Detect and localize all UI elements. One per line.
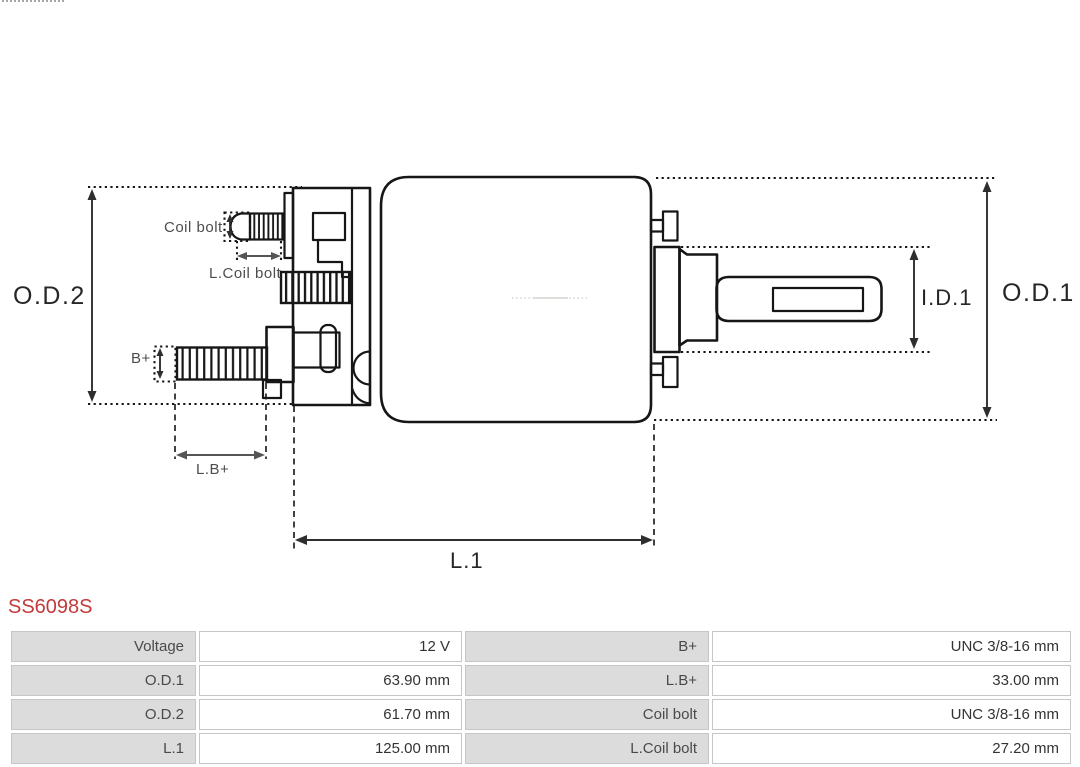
dim-label-lbplus: L.B+ xyxy=(196,462,229,477)
table-row: L.1 125.00 mm L.Coil bolt 27.20 mm xyxy=(11,733,1071,764)
dim-label-lcoil-bolt: L.Coil bolt xyxy=(209,266,281,281)
dim-label-l1: L.1 xyxy=(450,550,484,572)
table-row: O.D.2 61.70 mm Coil bolt UNC 3/8-16 mm xyxy=(11,699,1071,730)
lbplus-drop-lines xyxy=(175,383,266,459)
l1-drop-lines xyxy=(294,406,654,549)
od1-dimension-arrow xyxy=(983,181,992,418)
spec-label: Coil bolt xyxy=(465,699,709,730)
spec-value: 61.70 mm xyxy=(199,699,462,730)
solenoid-diagram: O.D.2 O.D.1 I.D.1 L.1 Coil bolt L.Coil b… xyxy=(0,0,1080,590)
spec-label: B+ xyxy=(465,631,709,662)
l1-dimension-arrow xyxy=(295,535,653,545)
dim-label-coil-bolt: Coil bolt xyxy=(164,220,223,235)
solenoid-drawing xyxy=(0,0,1080,590)
spec-value: 27.20 mm xyxy=(712,733,1071,764)
spec-value: 12 V xyxy=(199,631,462,662)
bplus-dimension-arrow xyxy=(157,348,164,379)
coil-bushing xyxy=(281,272,350,303)
spec-label: L.Coil bolt xyxy=(465,733,709,764)
dim-label-od2: O.D.2 xyxy=(13,284,86,309)
spec-label: Voltage xyxy=(11,631,196,662)
lcoil-extent-lines xyxy=(237,241,281,262)
dim-label-id1: I.D.1 xyxy=(921,287,972,309)
spec-label: O.D.2 xyxy=(11,699,196,730)
spec-value: 33.00 mm xyxy=(712,665,1071,696)
spec-value: UNC 3/8-16 mm xyxy=(712,699,1071,730)
spec-value: UNC 3/8-16 mm xyxy=(712,631,1071,662)
coil-bolt-extent-box xyxy=(225,213,251,242)
dim-label-bplus: B+ xyxy=(131,351,151,366)
spec-label: L.B+ xyxy=(465,665,709,696)
id1-extent-lines xyxy=(681,247,930,352)
lcoil-dimension-arrow xyxy=(237,252,281,260)
product-spec-page: O.D.2 O.D.1 I.D.1 L.1 Coil bolt L.Coil b… xyxy=(0,0,1080,767)
coil-bolt xyxy=(231,214,283,240)
spec-value: 125.00 mm xyxy=(199,733,462,764)
od2-dimension-arrow xyxy=(88,189,97,402)
plunger-shaft xyxy=(655,247,882,352)
table-row: O.D.1 63.90 mm L.B+ 33.00 mm xyxy=(11,665,1071,696)
solenoid-body xyxy=(381,177,651,422)
dim-label-od1: O.D.1 xyxy=(1002,281,1075,306)
spec-table: Voltage 12 V B+ UNC 3/8-16 mm O.D.1 63.9… xyxy=(8,628,1074,767)
spec-label: O.D.1 xyxy=(11,665,196,696)
bplus-bolt xyxy=(177,325,340,398)
lbplus-dimension-arrow xyxy=(176,451,265,460)
spec-value: 63.90 mm xyxy=(199,665,462,696)
table-row: Voltage 12 V B+ UNC 3/8-16 mm xyxy=(11,631,1071,662)
part-number: SS6098S xyxy=(8,596,93,619)
spec-label: L.1 xyxy=(11,733,196,764)
id1-dimension-arrow xyxy=(910,249,919,349)
bplus-extent-box xyxy=(155,347,176,382)
